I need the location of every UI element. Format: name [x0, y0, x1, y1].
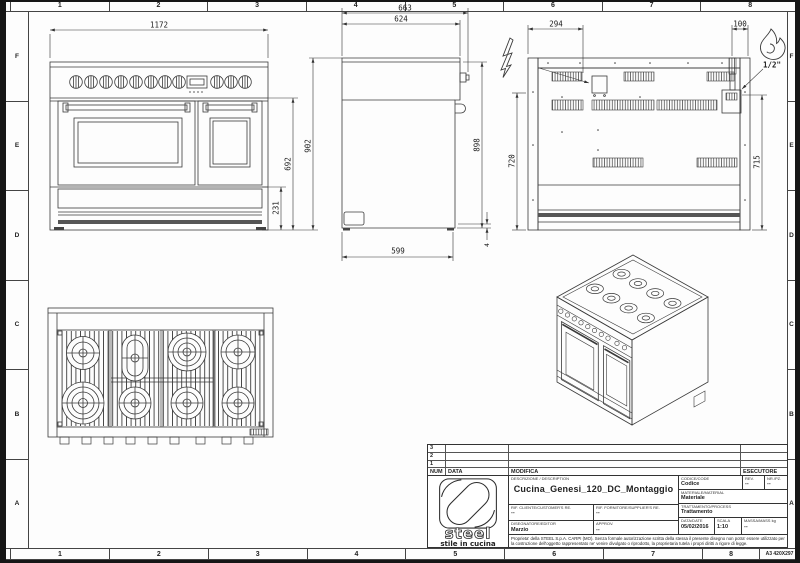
- burner-wok-right: [168, 333, 206, 371]
- trattamento-cell: TRATTAMENTO/PROCESS Trattamento: [679, 504, 787, 518]
- gas-inlet-hook: [455, 104, 466, 113]
- isometric-view: [557, 255, 708, 425]
- dim-side-body-depth: 624: [394, 15, 408, 24]
- storage-drawer: [50, 187, 268, 230]
- revision-row: 1: [428, 461, 787, 469]
- dim-side-total-depth: 663: [398, 4, 412, 13]
- burner-wok-left: [62, 382, 104, 424]
- burner-std-4: [222, 387, 254, 419]
- oven-door-right: [198, 101, 262, 185]
- control-display: [187, 76, 207, 93]
- dim-front-width: 1172: [150, 21, 168, 30]
- steel-logo: steel stile in cucina: [428, 476, 509, 548]
- scale-cell: SCALA 1:10: [715, 518, 742, 534]
- dim-gas-thread: 1/2": [763, 61, 781, 70]
- burner-aux: [67, 337, 100, 370]
- screws: [532, 62, 746, 201]
- materiale-cell: MATERIALE/MATERIAL Materiale: [679, 490, 787, 503]
- revision-header-row: NUM DATA MODIFICA ESECUTORE: [428, 468, 787, 475]
- date-cell: DATA/DATE 05/02/2016: [679, 518, 715, 534]
- legal-notice: Proprieta' della STEEL S.p.A. CARPI (MO)…: [509, 535, 787, 548]
- vent-slots: [552, 72, 737, 167]
- approv-cell: APPROV. --: [594, 521, 678, 534]
- dim-front-total-height: 902: [304, 139, 313, 153]
- rif-fornitore-cell: RIF. FORNITORE/SUPPLIER'S RE. --: [594, 505, 678, 521]
- rif-cliente-cell: RIF. CLIENTE/CUSTOMER'S RE. --: [509, 505, 594, 521]
- dim-side-height: 898: [473, 138, 482, 152]
- revision-table: 3 2 1 NUM DATA MODIFICA ESECUTORE: [428, 445, 787, 476]
- mass-cell: MASSA/MASS kg --: [742, 518, 787, 534]
- dim-side-bottom-depth: 599: [391, 247, 405, 256]
- rev-cell: REV. --: [743, 476, 765, 489]
- oven-door-left: [58, 101, 195, 185]
- burner-std-3: [221, 335, 255, 369]
- rating-plate: [344, 212, 364, 225]
- front-view: [50, 62, 268, 230]
- dim-side-feet: 4: [483, 243, 491, 247]
- electrical-box: [592, 76, 607, 96]
- back-view: [528, 58, 750, 230]
- dim-back-left-height: 720: [508, 154, 517, 168]
- dim-front-oven-height: 692: [284, 157, 293, 171]
- rear-tabs: [60, 429, 268, 444]
- revision-row: 3: [428, 445, 787, 453]
- dim-back-electric-offset: 294: [549, 20, 563, 29]
- codice-cell: CODICE/CODE Codice: [679, 476, 743, 489]
- nr-cell: NR./PZ. --: [765, 476, 787, 489]
- title-block: 3 2 1 NUM DATA MODIFICA ESECUTORE: [427, 444, 788, 548]
- flame-icon: [760, 29, 785, 59]
- burner-std-1: [119, 387, 151, 419]
- burner-oval: [122, 335, 148, 381]
- drawing-title: Cucina_Genesi_120_DC_Montaggio: [509, 484, 678, 494]
- sheet-edge-left: [0, 0, 6, 563]
- top-view: [48, 308, 273, 444]
- revision-row: 2: [428, 453, 787, 461]
- description-cell: DESCRIZIONE / DESCRIPTION Cucina_Genesi_…: [509, 476, 678, 505]
- drawing-sheet: 1 2 3 4 5 6 7 8 1 2 3 4 5 6 7 8 A3 420X2…: [0, 0, 800, 563]
- sheet-edge-top: [0, 0, 800, 2]
- gas-connection: [722, 58, 741, 113]
- lightning-icon: [501, 38, 513, 78]
- burner-std-2: [171, 387, 203, 419]
- logo-tagline: stile in cucina: [440, 539, 496, 547]
- sheet-edge-right: [795, 0, 800, 563]
- side-view: [342, 58, 469, 231]
- dim-front-base-height: 231: [272, 201, 281, 215]
- dim-back-gas-offset: 100: [733, 20, 747, 29]
- disegnatore-cell: DISEGNATORE/EDITOR Marzio: [509, 521, 594, 534]
- dim-back-gas-height: 715: [753, 155, 762, 169]
